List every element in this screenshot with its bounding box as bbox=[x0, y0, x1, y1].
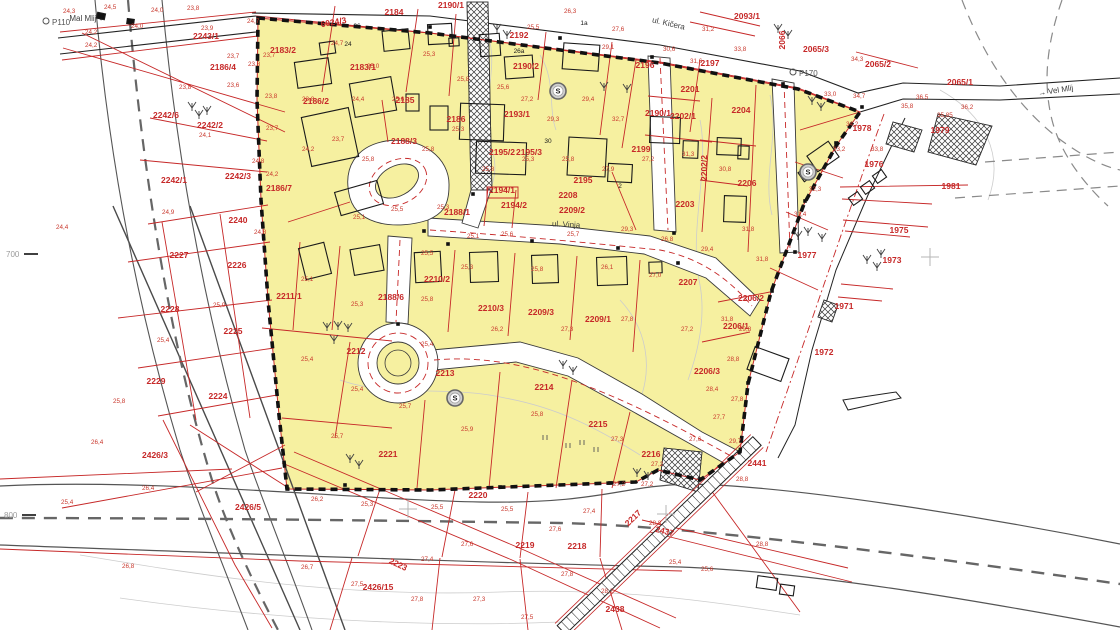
parcel-label: 2243/1 bbox=[193, 31, 219, 41]
roundabout bbox=[358, 323, 438, 403]
monument-marker bbox=[781, 82, 785, 86]
elevation-label: 23,6 bbox=[227, 82, 240, 89]
parcel-label: 2426/5 bbox=[235, 502, 261, 512]
parcel-label: 2242/3 bbox=[225, 171, 251, 181]
elevation-label: 27,6 bbox=[549, 526, 562, 533]
monument-marker bbox=[698, 477, 702, 481]
parcel-label: 2206 bbox=[738, 178, 757, 188]
elevation-label: 29,8 bbox=[739, 326, 752, 333]
parcel-label: 2066 bbox=[777, 30, 787, 49]
elevation-label: 31,8 bbox=[721, 316, 734, 323]
elevation-label: 25,6 bbox=[701, 566, 714, 573]
parcel-label: 2242/6 bbox=[153, 110, 179, 120]
parcel-label: 2216 bbox=[642, 449, 661, 459]
parcel-label: 2209/3 bbox=[528, 307, 554, 317]
parcel-label: 1979 bbox=[931, 125, 950, 135]
elevation-label: 25,8 bbox=[562, 156, 575, 163]
parcel-label: 2192 bbox=[510, 30, 529, 40]
parcel-label: 1981 bbox=[942, 181, 961, 191]
monument-marker bbox=[616, 246, 620, 250]
parcel-label: 2196 bbox=[636, 60, 655, 70]
elevation-label: 27,4 bbox=[583, 508, 596, 515]
parcel-label: 2186/7 bbox=[266, 183, 292, 193]
elevation-label: 27,6 bbox=[689, 436, 702, 443]
parcel-label: 2215 bbox=[589, 419, 608, 429]
elevation-label: 29,4 bbox=[701, 246, 714, 253]
parcel-label: 2188/6 bbox=[378, 292, 404, 302]
elevation-label: 24,7 bbox=[331, 40, 344, 47]
elevation-label: 24,1 bbox=[199, 132, 212, 139]
monument-marker bbox=[343, 483, 347, 487]
parcel-label: 2194/2 bbox=[501, 200, 527, 210]
elevation-label: 25,3 bbox=[452, 126, 465, 133]
elevation-label: 25,7 bbox=[331, 433, 344, 440]
parcel-label: 2212 bbox=[347, 346, 366, 356]
elevation-label: 25,5 bbox=[431, 504, 444, 511]
parcel-label: 1977 bbox=[798, 250, 817, 260]
elevation-label: 27,5 bbox=[351, 581, 364, 588]
elevation-label: 27,8 bbox=[411, 596, 424, 603]
elevation-label: 31,2 bbox=[702, 26, 715, 33]
elevation-label: 27,3 bbox=[611, 436, 624, 443]
elevation-label: 24,8 bbox=[254, 229, 267, 236]
elevation-label: 27,3 bbox=[561, 326, 574, 333]
elevation-label: 28,8 bbox=[736, 476, 749, 483]
elevation-label: 25,8 bbox=[113, 398, 126, 405]
parcel-label: 2202/1 bbox=[670, 111, 696, 121]
elevation-label: 30,6 bbox=[663, 46, 676, 53]
parcel-label: 2093/1 bbox=[734, 11, 760, 21]
parcel-label: 2209/2 bbox=[559, 205, 585, 215]
parcel-label: 2226 bbox=[228, 260, 247, 270]
parcel-label: 2065/1 bbox=[947, 77, 973, 87]
monument-marker bbox=[498, 485, 502, 489]
parcel-label: 2219 bbox=[516, 540, 535, 550]
elevation-label: 25,5 bbox=[391, 206, 404, 213]
elevation-label: 26,2 bbox=[311, 496, 324, 503]
parcel-label: 2207 bbox=[679, 277, 698, 287]
house-number: 26 bbox=[353, 23, 361, 30]
parcel-label: 2225 bbox=[224, 326, 243, 336]
house-number: 2 bbox=[618, 183, 622, 190]
elevation-label: 32,7 bbox=[612, 116, 625, 123]
elevation-label: 25,6 bbox=[501, 231, 514, 238]
monument-marker bbox=[530, 239, 534, 243]
parcel-label: 2201 bbox=[681, 84, 700, 94]
elevation-label: 29,3 bbox=[547, 116, 560, 123]
monument-marker bbox=[558, 36, 562, 40]
parcel-label: 2190/1 bbox=[645, 108, 671, 118]
monument-marker bbox=[428, 25, 432, 29]
elevation-label: 27,5 bbox=[521, 614, 534, 621]
elevation-label: 27,2 bbox=[521, 96, 534, 103]
parcel-label: 2210/3 bbox=[478, 303, 504, 313]
elevation-label: 28,4 bbox=[706, 386, 719, 393]
elevation-label: 25,4 bbox=[61, 499, 74, 506]
elevation-label: 29,4 bbox=[582, 96, 595, 103]
control-point-label: P110 bbox=[52, 18, 71, 27]
parcel-label: 2441 bbox=[748, 458, 767, 468]
parcel-label: 2220 bbox=[469, 490, 488, 500]
grid-label: 700 bbox=[6, 250, 20, 259]
house-number: 26a bbox=[514, 48, 525, 55]
elevation-label: 24,4 bbox=[352, 96, 365, 103]
elevation-label: 27,6 bbox=[461, 541, 474, 548]
elevation-label: 25,5 bbox=[527, 24, 540, 31]
elevation-label: 36,5 bbox=[916, 94, 929, 101]
elevation-label: 26,7 bbox=[301, 564, 314, 571]
parcel-label: 2065/3 bbox=[803, 44, 829, 54]
elevation-label: 25,8 bbox=[457, 76, 470, 83]
elevation-label: 29,3 bbox=[621, 226, 634, 233]
elevation-label: 23,8 bbox=[302, 96, 315, 103]
elevation-label: 23,7 bbox=[266, 125, 279, 132]
elevation-label: 25,1 bbox=[301, 276, 314, 283]
footpath-hatched bbox=[467, 2, 492, 192]
elevation-label: 24,2 bbox=[85, 42, 98, 49]
monument-marker bbox=[471, 192, 475, 196]
elevation-label: 25,7 bbox=[567, 231, 580, 238]
elevation-label: 27,2 bbox=[613, 481, 626, 488]
elevation-label: 34,3 bbox=[851, 56, 864, 63]
parcel-label: 2193/1 bbox=[504, 109, 530, 119]
elevation-label: 28,8 bbox=[756, 541, 769, 548]
elevation-label: 24,2 bbox=[302, 146, 315, 153]
monument-marker bbox=[422, 229, 426, 233]
elevation-label: 26,4 bbox=[142, 485, 155, 492]
control-point-label: P170 bbox=[799, 69, 818, 78]
house-number: 1a bbox=[580, 20, 588, 27]
elevation-label: 27,9 bbox=[602, 166, 615, 173]
elevation-label: 25,3 bbox=[522, 156, 535, 163]
parcel-label: 2208 bbox=[559, 190, 578, 200]
s-symbol: S bbox=[447, 390, 463, 406]
grid-label: 800 bbox=[4, 511, 18, 520]
elevation-label: 25,1 bbox=[353, 214, 366, 221]
elevation-label: 27,2 bbox=[642, 156, 655, 163]
parcel-label: 2186 bbox=[447, 114, 466, 124]
elevation-label: 27,8 bbox=[561, 571, 574, 578]
cadastral-map-svg: SSS 2243/12186/42242/62242/22242/12242/3… bbox=[0, 0, 1120, 630]
parcel-label: 2229 bbox=[147, 376, 166, 386]
elevation-label: 27,6 bbox=[612, 26, 625, 33]
elevation-label: 25,6 bbox=[497, 84, 510, 91]
elevation-label: 23,8 bbox=[179, 84, 192, 91]
elevation-label: 28,8 bbox=[727, 356, 740, 363]
elevation-label: 25,8 bbox=[531, 266, 544, 273]
elevation-label: 25,4 bbox=[421, 341, 434, 348]
elevation-label: 24,2 bbox=[85, 29, 98, 36]
monument-marker bbox=[650, 55, 654, 59]
elevation-label: 24,7 bbox=[247, 18, 260, 25]
monument-marker bbox=[285, 485, 289, 489]
monument-marker bbox=[860, 105, 864, 109]
elevation-label: 27,3 bbox=[473, 596, 486, 603]
elevation-label: 34,7 bbox=[853, 93, 866, 100]
parcel-label: 2184 bbox=[385, 7, 404, 17]
parcel-label: 2240 bbox=[229, 215, 248, 225]
elevation-label: 24,2 bbox=[266, 171, 279, 178]
monument-marker bbox=[746, 381, 750, 385]
elevation-label: 29,7 bbox=[729, 438, 742, 445]
parcel-label: 1971 bbox=[835, 301, 854, 311]
elevation-label: 26,3 bbox=[564, 8, 577, 15]
elevation-label: 33,2 bbox=[833, 146, 846, 153]
elevation-label: 27,2 bbox=[681, 326, 694, 333]
elevation-label: 33,0 bbox=[824, 91, 837, 98]
parcel-label: 2426/3 bbox=[142, 450, 168, 460]
elevation-label: 24,0 bbox=[131, 23, 144, 30]
parcel-label: 2204 bbox=[732, 105, 751, 115]
elevation-label: 26,8 bbox=[122, 563, 135, 570]
elevation-label: 27,7 bbox=[713, 414, 726, 421]
parcel-label: 2203 bbox=[676, 199, 695, 209]
parcel-label: 1973 bbox=[883, 255, 902, 265]
elevation-label: 31,8 bbox=[756, 256, 769, 263]
elevation-label: 25,0 bbox=[367, 63, 380, 70]
elevation-label: 25,5 bbox=[421, 250, 434, 257]
s-symbol-letter: S bbox=[555, 87, 560, 96]
elevation-label: 27,2 bbox=[641, 481, 654, 488]
monument-marker bbox=[793, 250, 797, 254]
elevation-label: 23,8 bbox=[248, 61, 261, 68]
elevation-label: 27,4 bbox=[421, 556, 434, 563]
elevation-label: 25,8 bbox=[531, 411, 544, 418]
elevation-label: 35,8 bbox=[901, 103, 914, 110]
elevation-label: 33,8 bbox=[871, 146, 884, 153]
parcel-label: 2213 bbox=[436, 368, 455, 378]
parcel-label: 1976 bbox=[865, 159, 884, 169]
monument-marker bbox=[834, 141, 838, 145]
elevation-label: 23,7 bbox=[263, 52, 276, 59]
parcel-label: 2242/2 bbox=[197, 120, 223, 130]
elevation-label: 23,7 bbox=[332, 136, 345, 143]
elevation-label: 36,2 bbox=[961, 104, 974, 111]
elevation-label: 25,7 bbox=[399, 403, 412, 410]
parcel-label: 2195 bbox=[574, 175, 593, 185]
elevation-label: 24,8 bbox=[252, 158, 265, 165]
s-symbol-letter: S bbox=[452, 394, 457, 403]
parcel-label: 2194/1 bbox=[489, 185, 515, 195]
elevation-label: 25,3 bbox=[437, 204, 450, 211]
elevation-label: 32,3 bbox=[809, 186, 822, 193]
parcel-label: 2210/2 bbox=[424, 274, 450, 284]
elevation-label: 25,3 bbox=[461, 264, 474, 271]
parcel-label: 2186/4 bbox=[210, 62, 236, 72]
monument-marker bbox=[770, 289, 774, 293]
monument-marker bbox=[608, 481, 612, 485]
elevation-label: 31,3 bbox=[682, 151, 695, 158]
parcel-label: 2206/2 bbox=[738, 293, 764, 303]
parcel-label: 2438 bbox=[606, 604, 625, 614]
elevation-label: 23,7 bbox=[227, 53, 240, 60]
elevation-label: 25,3 bbox=[351, 301, 364, 308]
elevation-label: 31,4 bbox=[794, 211, 807, 218]
parcel-label: 2202/2 bbox=[699, 155, 709, 181]
elevation-label: 24,9 bbox=[162, 209, 175, 216]
elevation-label: 25,9 bbox=[461, 426, 474, 433]
house-number: 24 bbox=[344, 41, 352, 48]
parcel-label: 2214 bbox=[535, 382, 554, 392]
elevation-label: 25,4 bbox=[301, 356, 314, 363]
elevation-label: 25,4 bbox=[351, 386, 364, 393]
parcel-label: 2206/3 bbox=[694, 366, 720, 376]
street-label: Mal Mlij ← bbox=[69, 14, 106, 23]
elevation-label: 26,8 bbox=[661, 236, 674, 243]
elevation-label: 27,8 bbox=[731, 396, 744, 403]
parcel-label: 2211/1 bbox=[276, 291, 302, 301]
elevation-label: 25,8 bbox=[482, 166, 495, 173]
elevation-label: 29,1 bbox=[602, 44, 615, 51]
elevation-label: 24,0 bbox=[151, 7, 164, 14]
parcel-label: 2209/1 bbox=[585, 314, 611, 324]
parcel-label: 2195/2 bbox=[489, 147, 515, 157]
elevation-label: 34,2 bbox=[846, 121, 859, 128]
s-symbol-letter: S bbox=[805, 168, 810, 177]
parcel-label: 2188/3 bbox=[391, 136, 417, 146]
elevation-label: 25,6 bbox=[392, 96, 405, 103]
elevation-label: 25,1 bbox=[467, 233, 480, 240]
elevation-label: 24,5 bbox=[104, 4, 117, 11]
s-symbol: S bbox=[550, 83, 566, 99]
cadastral-map-canvas[interactable]: SSS 2243/12186/42242/62242/22242/12242/3… bbox=[0, 0, 1120, 630]
monument-marker bbox=[676, 261, 680, 265]
elevation-label: 26,1 bbox=[601, 264, 614, 271]
elevation-label: 31,6 bbox=[690, 58, 703, 65]
elevation-label: 23,8 bbox=[265, 93, 278, 100]
elevation-label: 35,85 bbox=[937, 112, 953, 119]
elevation-label: 25,3 bbox=[361, 501, 374, 508]
parcel-label: 2199 bbox=[632, 144, 651, 154]
elevation-label: 26,2 bbox=[491, 326, 504, 333]
street-label: ul. Vinja bbox=[552, 219, 581, 229]
elevation-label: 24,4 bbox=[56, 224, 69, 231]
elevation-label: 25,3 bbox=[423, 51, 436, 58]
parcel-label: 2197 bbox=[701, 58, 720, 68]
monument-marker bbox=[446, 242, 450, 246]
parcel-label: 2190/2 bbox=[513, 61, 539, 71]
parcel-label: 2221 bbox=[379, 449, 398, 459]
parcel-label: 2065/2 bbox=[865, 59, 891, 69]
house-number: 30 bbox=[544, 138, 552, 145]
parcel-label: 1972 bbox=[815, 347, 834, 357]
parcel-label: 2242/1 bbox=[161, 175, 187, 185]
monument-marker bbox=[672, 231, 676, 235]
elevation-label: 25,8 bbox=[421, 296, 434, 303]
elevation-label: 31,8 bbox=[742, 226, 755, 233]
parcel-label: 2227 bbox=[170, 250, 189, 260]
elevation-label: 25,8 bbox=[362, 156, 375, 163]
elevation-label: 25,5 bbox=[501, 506, 514, 513]
elevation-label: 25,4 bbox=[157, 337, 170, 344]
elevation-label: 27,8 bbox=[621, 316, 634, 323]
elevation-label: 27,0 bbox=[649, 272, 662, 279]
monument-marker bbox=[803, 199, 807, 203]
elevation-label: 23,8 bbox=[187, 5, 200, 12]
elevation-label: 26,4 bbox=[91, 439, 104, 446]
monument-marker bbox=[396, 322, 400, 326]
parcel-label: 1975 bbox=[890, 225, 909, 235]
elevation-label: 33,8 bbox=[734, 46, 747, 53]
parcel-label: 2218 bbox=[568, 541, 587, 551]
elevation-label: 23,9 bbox=[201, 25, 214, 32]
elevation-label: 25,4 bbox=[669, 559, 682, 566]
s-symbol: S bbox=[800, 164, 816, 180]
elevation-label: 28,8 bbox=[649, 520, 662, 527]
parcel-label: 2426/15 bbox=[363, 582, 394, 592]
elevation-label: 27,2 bbox=[651, 461, 664, 468]
parcel-label: 2190/1 bbox=[438, 0, 464, 10]
parcel-label: 2224 bbox=[209, 391, 228, 401]
elevation-label: 30,8 bbox=[719, 166, 732, 173]
elevation-label: 28,2 bbox=[601, 588, 614, 595]
street-connector bbox=[386, 236, 412, 324]
elevation-label: 25,8 bbox=[422, 146, 435, 153]
elevation-label: 25,0 bbox=[213, 302, 226, 309]
parcel-label: 2228 bbox=[161, 304, 180, 314]
